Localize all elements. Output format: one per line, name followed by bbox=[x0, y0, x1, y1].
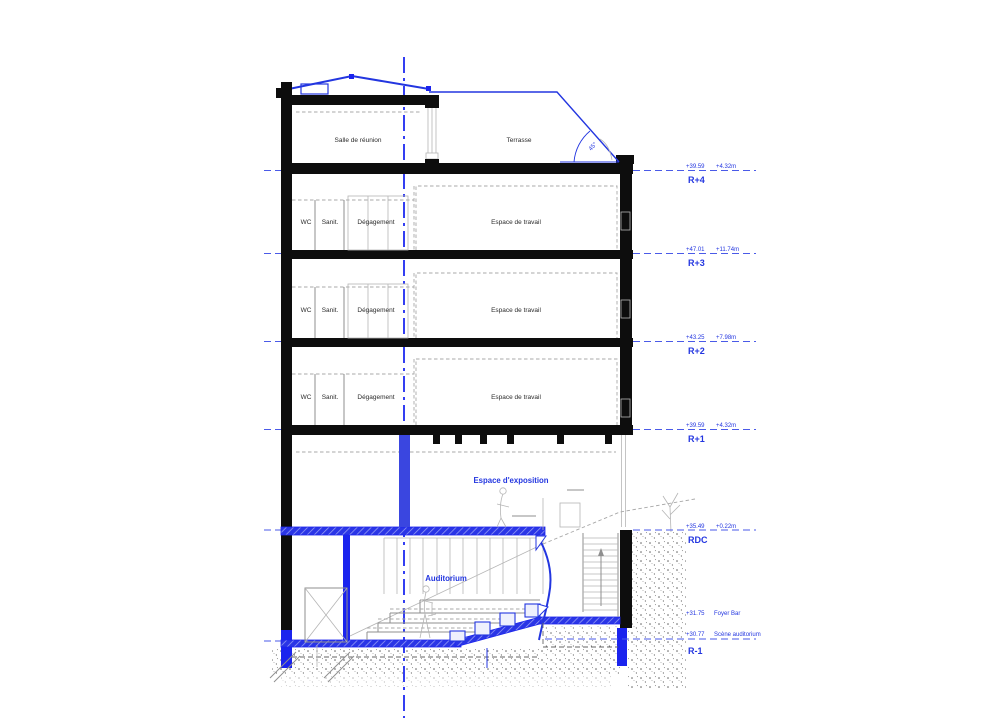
office-floor-2: WC Sanit. Dégagement Espace de travail bbox=[292, 273, 617, 338]
office-floor-1: WC Sanit. Dégagement Espace de travail bbox=[292, 359, 617, 425]
level-name: RDC bbox=[688, 535, 708, 545]
office-floor-3: WC Sanit. Dégagement Espace de travail bbox=[292, 186, 617, 250]
slab-r1 bbox=[281, 425, 633, 435]
room-label-degagement: Dégagement bbox=[357, 219, 394, 226]
stage-wall-panelling bbox=[384, 538, 544, 594]
level-label: Scène auditorium bbox=[714, 632, 761, 638]
room-label-espace-travail: Espace de travail bbox=[491, 307, 541, 314]
roof-envelope-line bbox=[284, 76, 429, 90]
slab-r2 bbox=[281, 338, 633, 347]
level-elevation: +47.01 bbox=[686, 247, 705, 253]
level-foyer-bar: +31.75 Foyer Bar bbox=[686, 611, 740, 617]
room-label-auditorium: Auditorium bbox=[425, 574, 467, 583]
stair-direction-arrow bbox=[598, 548, 604, 556]
level-elevation: +43.25 bbox=[686, 335, 705, 341]
roof-slab bbox=[281, 95, 427, 105]
terrace-parapet bbox=[616, 155, 634, 164]
level-elevation: +30.77 bbox=[686, 632, 705, 638]
section-drawing: Salle de réunion Terrasse 45° WC Sanit. … bbox=[0, 0, 1000, 721]
level-r3: +47.01 +11.74m R+3 bbox=[686, 247, 739, 268]
room-label-degagement: Dégagement bbox=[357, 394, 394, 401]
room-label-sanit: Sanit. bbox=[322, 219, 339, 226]
room-label-espace-exposition: Espace d'exposition bbox=[473, 476, 548, 485]
section-drawing-canvas: Salle de réunion Terrasse 45° WC Sanit. … bbox=[0, 0, 1000, 721]
level-relative: +7.98m bbox=[716, 335, 736, 341]
level-name: R+1 bbox=[688, 434, 705, 444]
level-relative: +4.32m bbox=[716, 164, 736, 170]
angle-label: 45° bbox=[588, 141, 599, 152]
person-figure bbox=[497, 488, 509, 527]
room-label-wc: WC bbox=[301, 307, 312, 314]
roof-angle-annotation: 45° bbox=[429, 92, 619, 162]
room-label-degagement: Dégagement bbox=[357, 307, 394, 314]
room-label-wc: WC bbox=[301, 219, 312, 226]
level-elevation: +31.75 bbox=[686, 611, 705, 617]
room-label-sanit: Sanit. bbox=[322, 307, 339, 314]
slab-rdc bbox=[281, 527, 545, 535]
beam-stubs bbox=[433, 435, 612, 444]
level-name: R+2 bbox=[688, 346, 705, 356]
roof bbox=[276, 74, 431, 105]
left-wall-below-grade bbox=[281, 630, 292, 668]
level-r4: +39.59 +4.32m R+4 bbox=[686, 164, 736, 185]
level-elevation: +39.59 bbox=[686, 423, 705, 429]
level-relative: +11.74m bbox=[716, 247, 739, 253]
level-r1: +39.59 +4.32m R+1 bbox=[686, 423, 736, 444]
level-elevation: +39.59 bbox=[686, 164, 705, 170]
level-name: R+3 bbox=[688, 258, 705, 268]
conductor-figure bbox=[420, 586, 436, 638]
right-wall-upper bbox=[620, 163, 632, 430]
slab-foyer bbox=[540, 617, 620, 624]
room-label-espace-travail: Espace de travail bbox=[491, 219, 541, 226]
level-r2: +43.25 +7.98m R+2 bbox=[686, 335, 736, 356]
level-name: R+4 bbox=[688, 175, 705, 185]
slab-r4 bbox=[281, 163, 633, 174]
room-label-terrasse: Terrasse bbox=[507, 137, 532, 144]
floor-rdc: Espace d'exposition bbox=[296, 435, 680, 532]
level-name: R-1 bbox=[688, 646, 703, 656]
room-label-wc: WC bbox=[301, 394, 312, 401]
tree-figure bbox=[662, 493, 680, 532]
right-wall-below-grade bbox=[617, 628, 627, 666]
level-relative: +0.22m bbox=[716, 524, 736, 530]
level-relative: +4.32m bbox=[716, 423, 736, 429]
room-label-salle-reunion: Salle de réunion bbox=[335, 137, 382, 144]
level-rdc: +35.49 +0.22m RDC bbox=[686, 524, 736, 545]
column bbox=[399, 435, 410, 527]
slab-r3 bbox=[281, 250, 633, 259]
level-label: Foyer Bar bbox=[714, 611, 740, 617]
room-label-espace-travail: Espace de travail bbox=[491, 394, 541, 401]
level-elevation: +35.49 bbox=[686, 524, 705, 530]
right-retaining-wall bbox=[620, 530, 632, 628]
stair-run bbox=[583, 533, 618, 617]
level-annotations: +39.59 +4.32m R+4 +47.01 +11.74m R+3 +43… bbox=[264, 164, 761, 656]
slab-stage bbox=[281, 640, 461, 647]
level-scene-auditorium: +30.77 Scène auditorium R-1 bbox=[686, 632, 761, 656]
room-label-sanit: Sanit. bbox=[322, 394, 339, 401]
